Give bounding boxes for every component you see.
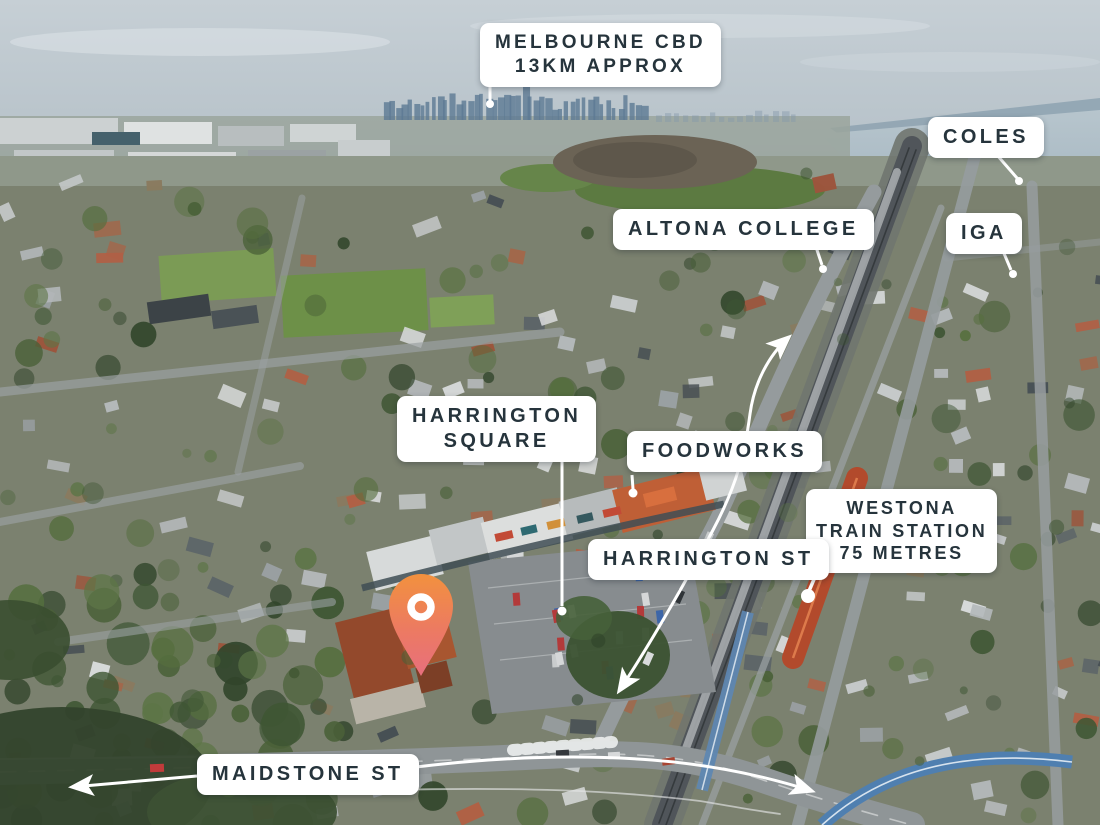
label-maidstone-st: MAIDSTONE ST (197, 754, 419, 795)
leader-iga (1003, 251, 1017, 278)
label-text: FOODWORKS (642, 439, 807, 464)
label-text: ALTONA COLLEGE (628, 217, 859, 242)
label-text: IGA (961, 221, 1007, 246)
label-westona-train-station: WESTONA TRAIN STATION 75 METRES (806, 489, 997, 573)
label-text: HARRINGTON (412, 404, 581, 429)
label-text: 75 METRES (816, 542, 987, 565)
label-text: SQUARE (412, 429, 581, 454)
aerial-marketing-image: MELBOURNE CBD 13KM APPROX COLES ALTONA C… (0, 0, 1100, 825)
label-harrington-st: HARRINGTON ST (588, 539, 829, 580)
leader-coles (997, 155, 1023, 185)
label-text: MAIDSTONE ST (212, 762, 404, 787)
label-text: HARRINGTON ST (603, 547, 814, 572)
label-text: MELBOURNE CBD (495, 31, 706, 55)
label-altona-college: ALTONA COLLEGE (613, 209, 874, 250)
label-coles: COLES (928, 117, 1044, 158)
label-harrington-square: HARRINGTON SQUARE (397, 396, 596, 462)
leader-foodworks (629, 475, 638, 498)
label-iga: IGA (946, 213, 1022, 254)
location-pin-icon (389, 574, 453, 676)
leader-altona-college (816, 247, 827, 273)
label-text: WESTONA (816, 497, 987, 520)
label-foodworks: FOODWORKS (627, 431, 822, 472)
street-arrow-maidstone-left (72, 776, 197, 787)
label-melbourne-cbd: MELBOURNE CBD 13KM APPROX (480, 23, 721, 87)
leader-harrington-square (558, 455, 567, 616)
street-arrow-harrington-st (619, 337, 789, 691)
label-text: 13KM APPROX (495, 55, 706, 79)
label-text: TRAIN STATION (816, 520, 987, 543)
label-text: COLES (943, 125, 1029, 150)
street-arrow-maidstone-right (386, 757, 812, 791)
